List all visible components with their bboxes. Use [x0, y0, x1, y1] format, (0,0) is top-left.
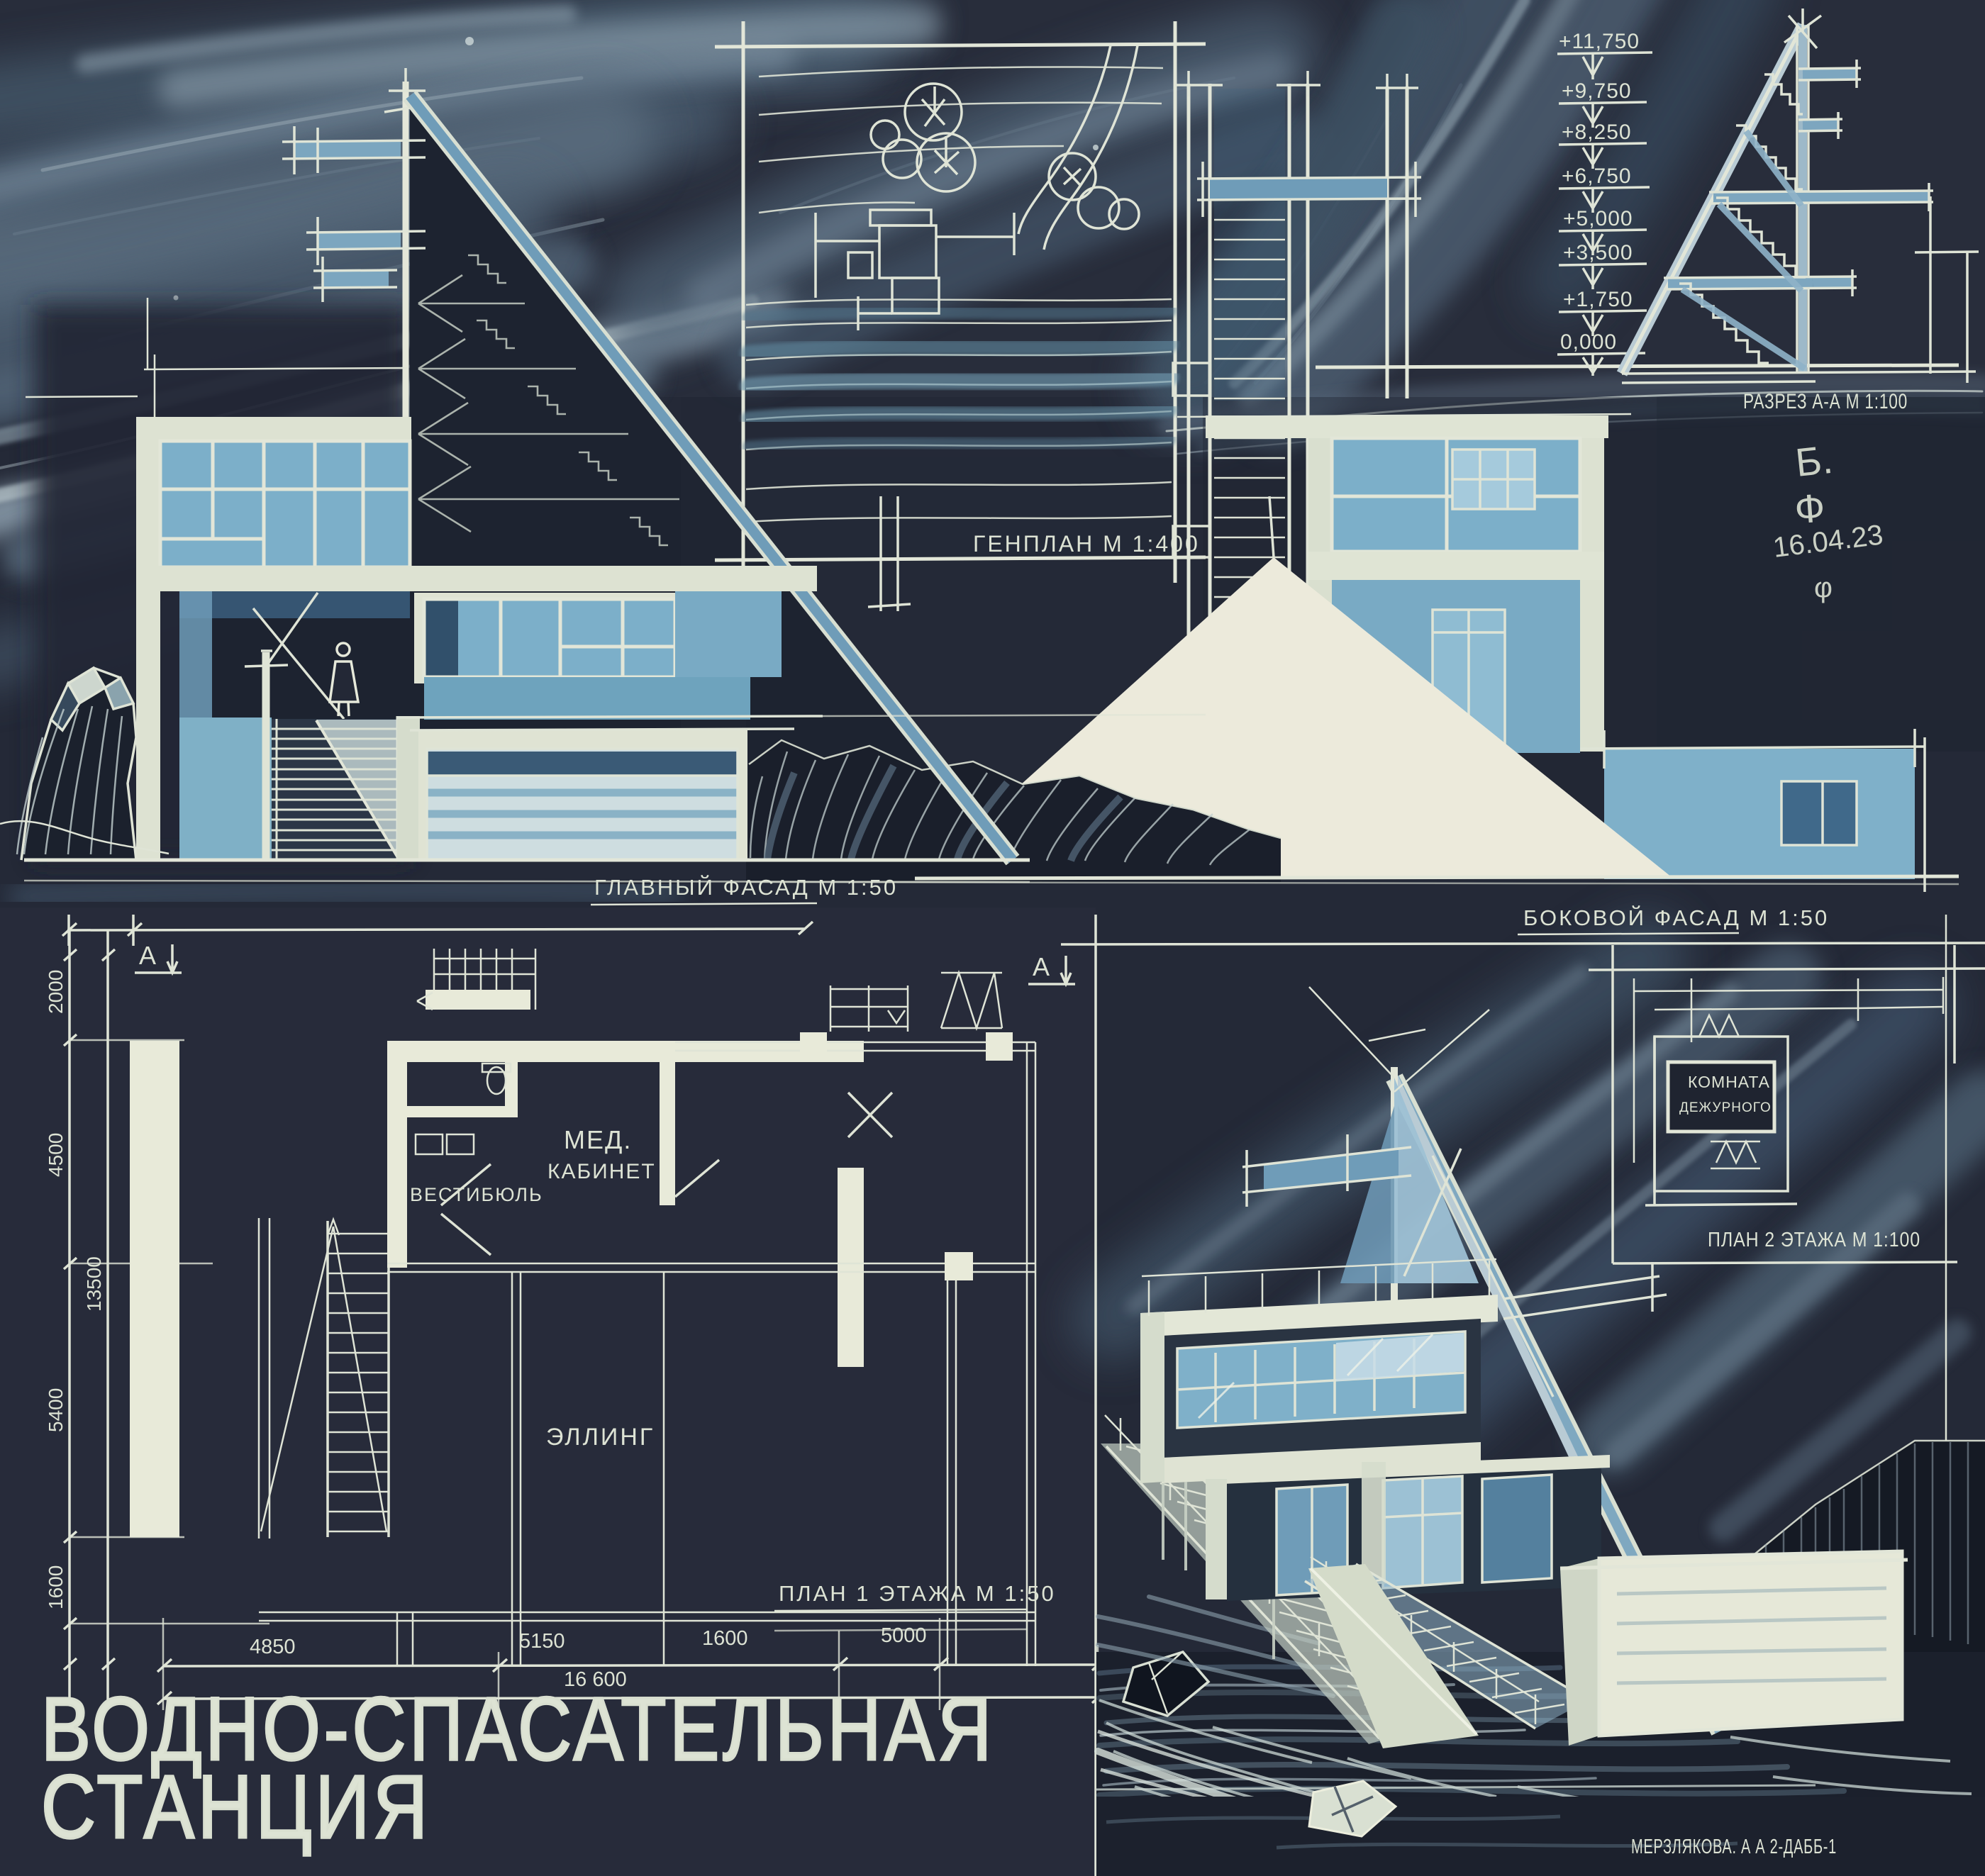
svg-text:ГЛАВНЫЙ ФАСАД М 1:50: ГЛАВНЫЙ ФАСАД М 1:50: [594, 874, 898, 900]
svg-text:А: А: [139, 941, 156, 970]
svg-text:1600: 1600: [702, 1627, 748, 1650]
svg-text:0,000: 0,000: [1560, 330, 1617, 354]
svg-text:А: А: [1033, 952, 1050, 981]
svg-text:СТАНЦИЯ: СТАНЦИЯ: [41, 1757, 431, 1857]
svg-text:φ: φ: [1814, 572, 1833, 603]
svg-text:Б.: Б.: [1794, 437, 1835, 485]
svg-text:+8,250: +8,250: [1562, 121, 1632, 144]
svg-text:МЕРЗЛЯКОВА. А А 2-ДАББ-1: МЕРЗЛЯКОВА. А А 2-ДАББ-1: [1631, 1836, 1837, 1858]
svg-text:БОКОВОЙ ФАСАД М 1:50: БОКОВОЙ ФАСАД М 1:50: [1523, 905, 1829, 930]
svg-text:+9,750: +9,750: [1562, 79, 1632, 103]
svg-text:5000: 5000: [881, 1624, 927, 1647]
svg-text:ПЛАН 1 ЭТАЖА М 1:50: ПЛАН 1 ЭТАЖА М 1:50: [779, 1581, 1056, 1606]
svg-text:МЕД.: МЕД.: [564, 1125, 632, 1154]
svg-text:ВЕСТИБЮЛЬ: ВЕСТИБЮЛЬ: [410, 1184, 543, 1205]
svg-text:2000: 2000: [45, 970, 67, 1014]
svg-text:13500: 13500: [83, 1256, 105, 1312]
svg-text:4850: 4850: [250, 1636, 296, 1658]
svg-text:4500: 4500: [45, 1133, 67, 1177]
svg-text:5400: 5400: [45, 1388, 67, 1432]
svg-text:+5,000: +5,000: [1563, 207, 1633, 230]
svg-text:КАБИНЕТ: КАБИНЕТ: [547, 1160, 656, 1183]
svg-text:ПЛАН 2 ЭТАЖА М 1:100: ПЛАН 2 ЭТАЖА М 1:100: [1708, 1229, 1920, 1251]
svg-text:5150: 5150: [519, 1630, 565, 1653]
svg-text:ДЕЖУРНОГО: ДЕЖУРНОГО: [1679, 1100, 1772, 1115]
svg-text:РАЗРЕЗ А-А М 1:100: РАЗРЕЗ А-А М 1:100: [1743, 390, 1908, 413]
svg-text:+11,750: +11,750: [1559, 30, 1640, 53]
svg-text:+1,750: +1,750: [1563, 288, 1633, 311]
svg-text:Ф: Ф: [1793, 485, 1826, 532]
svg-text:+6,750: +6,750: [1562, 164, 1632, 188]
svg-text:ГЕНПЛАН М 1:400: ГЕНПЛАН М 1:400: [973, 531, 1200, 557]
svg-text:1600: 1600: [45, 1565, 67, 1609]
svg-text:ЭЛЛИНГ: ЭЛЛИНГ: [546, 1424, 655, 1451]
svg-text:КОМНАТА: КОМНАТА: [1688, 1073, 1770, 1091]
